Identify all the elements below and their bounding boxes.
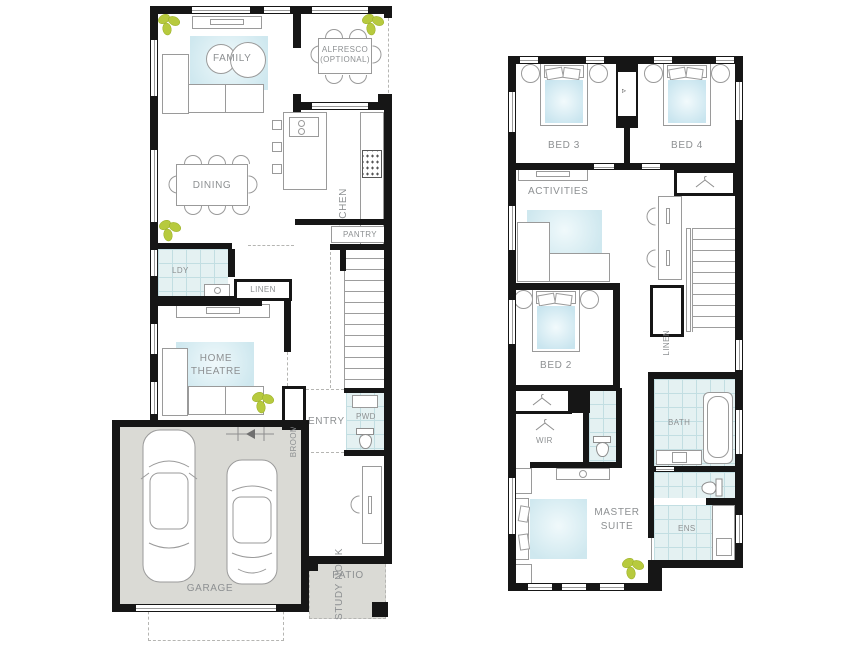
plant-icon [156, 12, 182, 38]
plant-icon [250, 390, 276, 416]
bed [532, 288, 580, 352]
niche-arrow-icon: ▹ [622, 86, 626, 95]
study-desk [362, 466, 382, 544]
window [600, 584, 624, 590]
window [151, 324, 157, 354]
window [509, 300, 515, 344]
plant-icon [620, 556, 646, 582]
stool [272, 120, 282, 130]
chair [232, 206, 250, 215]
opening-line [248, 245, 294, 246]
wall [735, 56, 743, 568]
tv-unit-shelf [210, 19, 244, 25]
wall [648, 378, 654, 470]
wall [295, 219, 392, 225]
door-opening [656, 467, 674, 471]
laundry-label: LDY [172, 266, 189, 275]
bathtub-inner [707, 396, 729, 458]
family-room-label: FAMILY [213, 53, 251, 64]
window [586, 57, 604, 63]
window [562, 584, 586, 590]
bedside-table [589, 64, 608, 83]
stair-balustrade [686, 228, 691, 332]
staircase-down [692, 228, 736, 332]
chair [373, 46, 382, 64]
broom-label: BROOM [289, 425, 298, 457]
window [151, 382, 157, 414]
wall [624, 128, 630, 168]
wall [530, 462, 622, 468]
desk-chair [351, 496, 360, 514]
bedside-table [514, 290, 533, 309]
opening-line [287, 352, 288, 386]
desk-monitor [666, 208, 670, 224]
bed-cover [530, 499, 587, 559]
wall [508, 163, 742, 170]
activities-label: ACTIVITIES [528, 186, 588, 197]
wall [344, 388, 392, 393]
window [151, 250, 157, 276]
wall [112, 420, 120, 612]
window [716, 57, 734, 63]
desk-monitor [368, 496, 372, 514]
desk-chair [647, 208, 656, 226]
dining-label: DINING [176, 180, 248, 191]
bed4-label: BED 4 [659, 140, 715, 151]
ensuite-label: ENS [678, 524, 696, 533]
bed2-label: BED 2 [528, 360, 584, 371]
sink-bowl [298, 128, 305, 135]
vanity-basin [672, 452, 687, 463]
tv-unit-shelf [536, 171, 570, 177]
toilet [593, 436, 611, 457]
stool [272, 164, 282, 174]
bedside-table [521, 64, 540, 83]
wall [613, 283, 620, 387]
floorplan-canvas: FAMILY ALFRESCO (OPTIONAL) KITCHEN [0, 0, 855, 654]
linen-label: LINEN [234, 285, 292, 294]
window [736, 410, 742, 454]
master-suite-label: MASTER SUITE [585, 506, 649, 534]
bed [540, 62, 588, 126]
tv-unit-shelf [206, 307, 240, 314]
patio-post [306, 559, 318, 571]
pantry-label: PANTRY [331, 230, 389, 239]
wall [150, 300, 262, 306]
bedside-table [644, 64, 663, 83]
sofa-seat [549, 253, 610, 282]
stool [272, 142, 282, 152]
staircase-up [344, 258, 386, 390]
shower-base [716, 538, 732, 556]
chair [208, 206, 226, 215]
wall [616, 118, 638, 128]
hanger-icon [531, 393, 553, 407]
window [736, 515, 742, 543]
toilet [356, 428, 374, 449]
sofa-arm [162, 54, 189, 114]
wall [112, 420, 308, 427]
garage-door [136, 605, 276, 611]
bedside-table [711, 64, 730, 83]
wall [706, 498, 742, 505]
chair [325, 75, 343, 84]
chair [184, 155, 202, 164]
entry-ceiling-line [306, 389, 344, 390]
garage-label: GARAGE [180, 583, 240, 594]
wall [384, 452, 392, 564]
door-opening [594, 164, 614, 169]
patio-post [372, 602, 388, 617]
desk-monitor [666, 250, 670, 266]
window [509, 206, 515, 250]
bed3-label: BED 3 [536, 140, 592, 151]
chair [249, 176, 258, 194]
entry-ceiling-line [306, 452, 344, 453]
bedside-table [514, 468, 532, 494]
window [520, 57, 538, 63]
toilet [702, 479, 723, 497]
plant-icon [360, 12, 386, 38]
car [224, 457, 280, 587]
window [528, 584, 552, 590]
chair [325, 29, 343, 38]
window [736, 340, 742, 370]
window [736, 82, 742, 120]
bedside-table [580, 290, 599, 309]
plant-icon [157, 218, 183, 244]
laundry-tub-bowl [214, 287, 221, 294]
home-theatre-label: HOME THEATRE [186, 352, 246, 378]
wall [583, 388, 589, 466]
window [509, 478, 515, 534]
wall [655, 560, 742, 568]
chair [208, 155, 226, 164]
wall [616, 56, 638, 70]
wall [616, 388, 622, 466]
window [264, 7, 290, 13]
alfresco-label: ALFRESCO (OPTIONAL) [318, 45, 372, 65]
dresser-bowl [579, 470, 587, 478]
bed [663, 62, 711, 126]
entry-label: ENTRY [308, 416, 345, 427]
study-desk [658, 196, 682, 280]
powder-basin [352, 395, 378, 408]
wall [305, 556, 392, 564]
wall [508, 385, 620, 391]
wc2-floor [654, 472, 735, 498]
window [151, 150, 157, 222]
window [509, 92, 515, 132]
window-niche [616, 70, 638, 118]
cooktop [362, 150, 382, 178]
wir-label: WIR [536, 436, 553, 445]
chair [349, 75, 367, 84]
wall [228, 249, 235, 277]
chair [184, 206, 202, 215]
sofa-seat [225, 84, 264, 113]
wall [284, 300, 291, 352]
stair-void-line [330, 252, 331, 388]
door-opening [642, 164, 660, 169]
door-opening [648, 538, 654, 560]
hanger-icon [694, 175, 716, 189]
window [312, 103, 368, 109]
sofa-arm [162, 348, 188, 416]
wall [384, 110, 392, 454]
desk-chair [647, 250, 656, 268]
powder-label: PWD [356, 412, 376, 421]
wall [378, 94, 392, 110]
wall [301, 420, 309, 612]
sink-bowl [298, 120, 305, 127]
patio-label: PATIO [318, 570, 378, 581]
hanger-icon [534, 418, 556, 432]
sofa-seat [188, 386, 226, 415]
sofa-seat [188, 84, 226, 113]
kitchen-sink [289, 117, 319, 137]
window [192, 7, 250, 13]
wall [340, 249, 346, 271]
bath-label: BATH [668, 418, 690, 427]
car [140, 427, 198, 585]
survey-marker-icon [226, 424, 274, 444]
sofa-seat [517, 222, 550, 282]
alfresco-edge-line [388, 18, 389, 98]
linen-label: LINEN [662, 330, 671, 356]
window [151, 40, 157, 96]
chair [232, 155, 250, 164]
wall [648, 372, 742, 379]
wall [508, 283, 618, 290]
window [654, 57, 672, 63]
wall [293, 6, 301, 48]
pillow [518, 533, 530, 550]
